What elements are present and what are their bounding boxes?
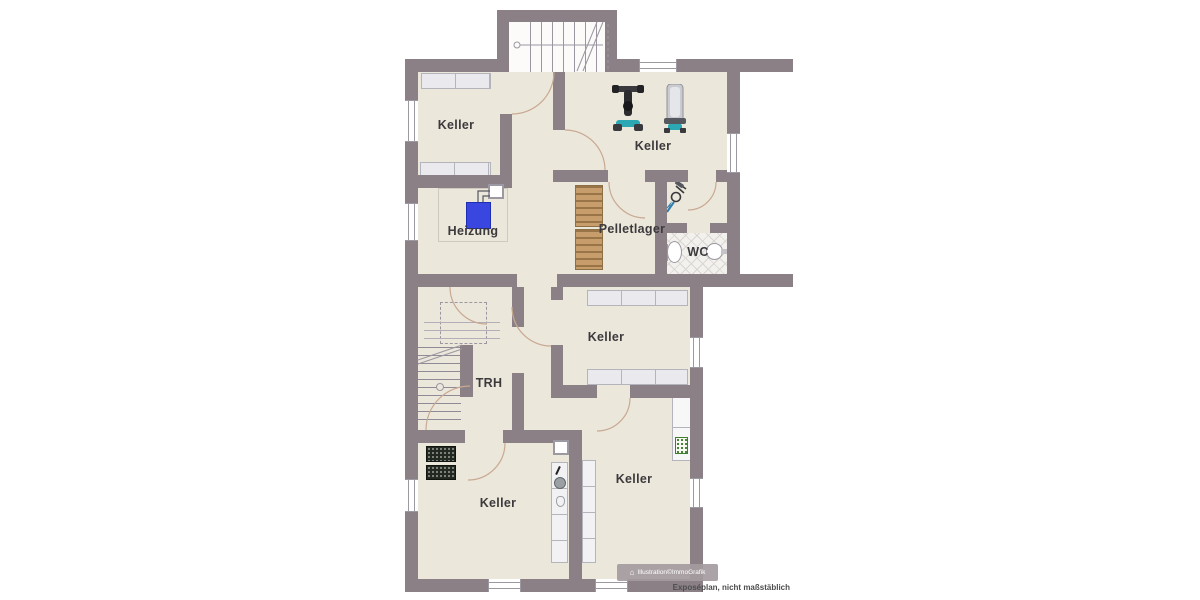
basin-icon — [554, 477, 566, 489]
shelf-unit-icon — [587, 290, 688, 306]
wall-mid-left — [405, 274, 517, 287]
wall-gym-left — [553, 72, 565, 130]
wall-mk-bottom-a — [551, 385, 597, 398]
shelf-unit-icon — [421, 73, 491, 89]
toilet-icon — [667, 241, 682, 263]
watermark-text: Illustration©ImmoGrafik — [637, 569, 705, 576]
room-label-keller-gym: Keller — [635, 139, 672, 153]
wall-trh-right-a — [512, 287, 524, 327]
shelf-unit-icon — [582, 460, 596, 563]
window-icon — [639, 59, 677, 72]
vegetable-crate-icon — [675, 437, 688, 454]
floorplan-canvas: Keller Keller Heizung Pelletlager WC TRH… — [0, 0, 1200, 600]
wall-wc-top-a — [667, 223, 687, 233]
staircase-icon — [418, 347, 461, 425]
window-icon — [405, 203, 418, 241]
room-label-keller-bottom-left: Keller — [480, 496, 517, 510]
wall-bump-right — [605, 10, 617, 72]
wall-gym-bottom-a — [553, 170, 608, 182]
shelf-unit-icon — [587, 369, 688, 385]
staircase-icon — [424, 322, 500, 346]
window-icon — [405, 100, 418, 142]
room-label-pelletlager: Pelletlager — [599, 222, 666, 236]
window-icon — [405, 479, 418, 512]
wall-trh-bottom-a — [418, 430, 465, 443]
shield-ornament-icon — [556, 496, 565, 507]
window-icon — [488, 579, 521, 592]
wall-trh-right-b — [512, 373, 524, 430]
staircase-icon — [530, 21, 603, 72]
wall-stair-spine — [460, 345, 473, 397]
chimney-icon — [488, 184, 504, 199]
wall-outer-right-bottom — [690, 287, 703, 592]
wall-gym-bottom-b — [645, 170, 688, 182]
wall-bottom-divider — [569, 430, 582, 579]
wall-outer-top-left — [405, 59, 497, 72]
room-label-heizung: Heizung — [448, 224, 499, 238]
room-label-keller-top-left: Keller — [438, 118, 475, 132]
window-icon — [690, 337, 703, 368]
wall-wc-top-b — [710, 223, 740, 233]
watermark-badge: ⌂ Illustration©ImmoGrafik — [617, 564, 718, 581]
disclaimer-text: Exposéplan, nicht maßstäblich — [640, 583, 790, 592]
window-icon — [690, 478, 703, 508]
wall-bump-left — [497, 10, 509, 72]
room-label-wc: WC — [687, 245, 708, 259]
wall-mk-left-b — [551, 345, 563, 385]
wall-mid-right — [557, 274, 793, 287]
gym-machine-icon — [612, 84, 644, 134]
room-label-keller-middle: Keller — [588, 330, 625, 344]
wine-rack-icon — [426, 446, 456, 462]
room-label-keller-bottom-right: Keller — [616, 472, 653, 486]
floor-corridor-gap — [517, 274, 557, 287]
fridge-divider — [672, 427, 691, 428]
chimney-icon — [553, 440, 569, 455]
wall-mk-bottom-b — [630, 385, 703, 398]
wine-rack-icon — [426, 465, 456, 480]
gym-machine-icon — [662, 84, 688, 134]
house-icon: ⌂ — [630, 569, 635, 577]
pallet-icon — [575, 185, 603, 227]
wall-bump-top — [497, 10, 617, 22]
window-icon — [727, 133, 740, 173]
room-label-trh: TRH — [476, 376, 503, 390]
wall-mk-left-a — [551, 287, 563, 300]
